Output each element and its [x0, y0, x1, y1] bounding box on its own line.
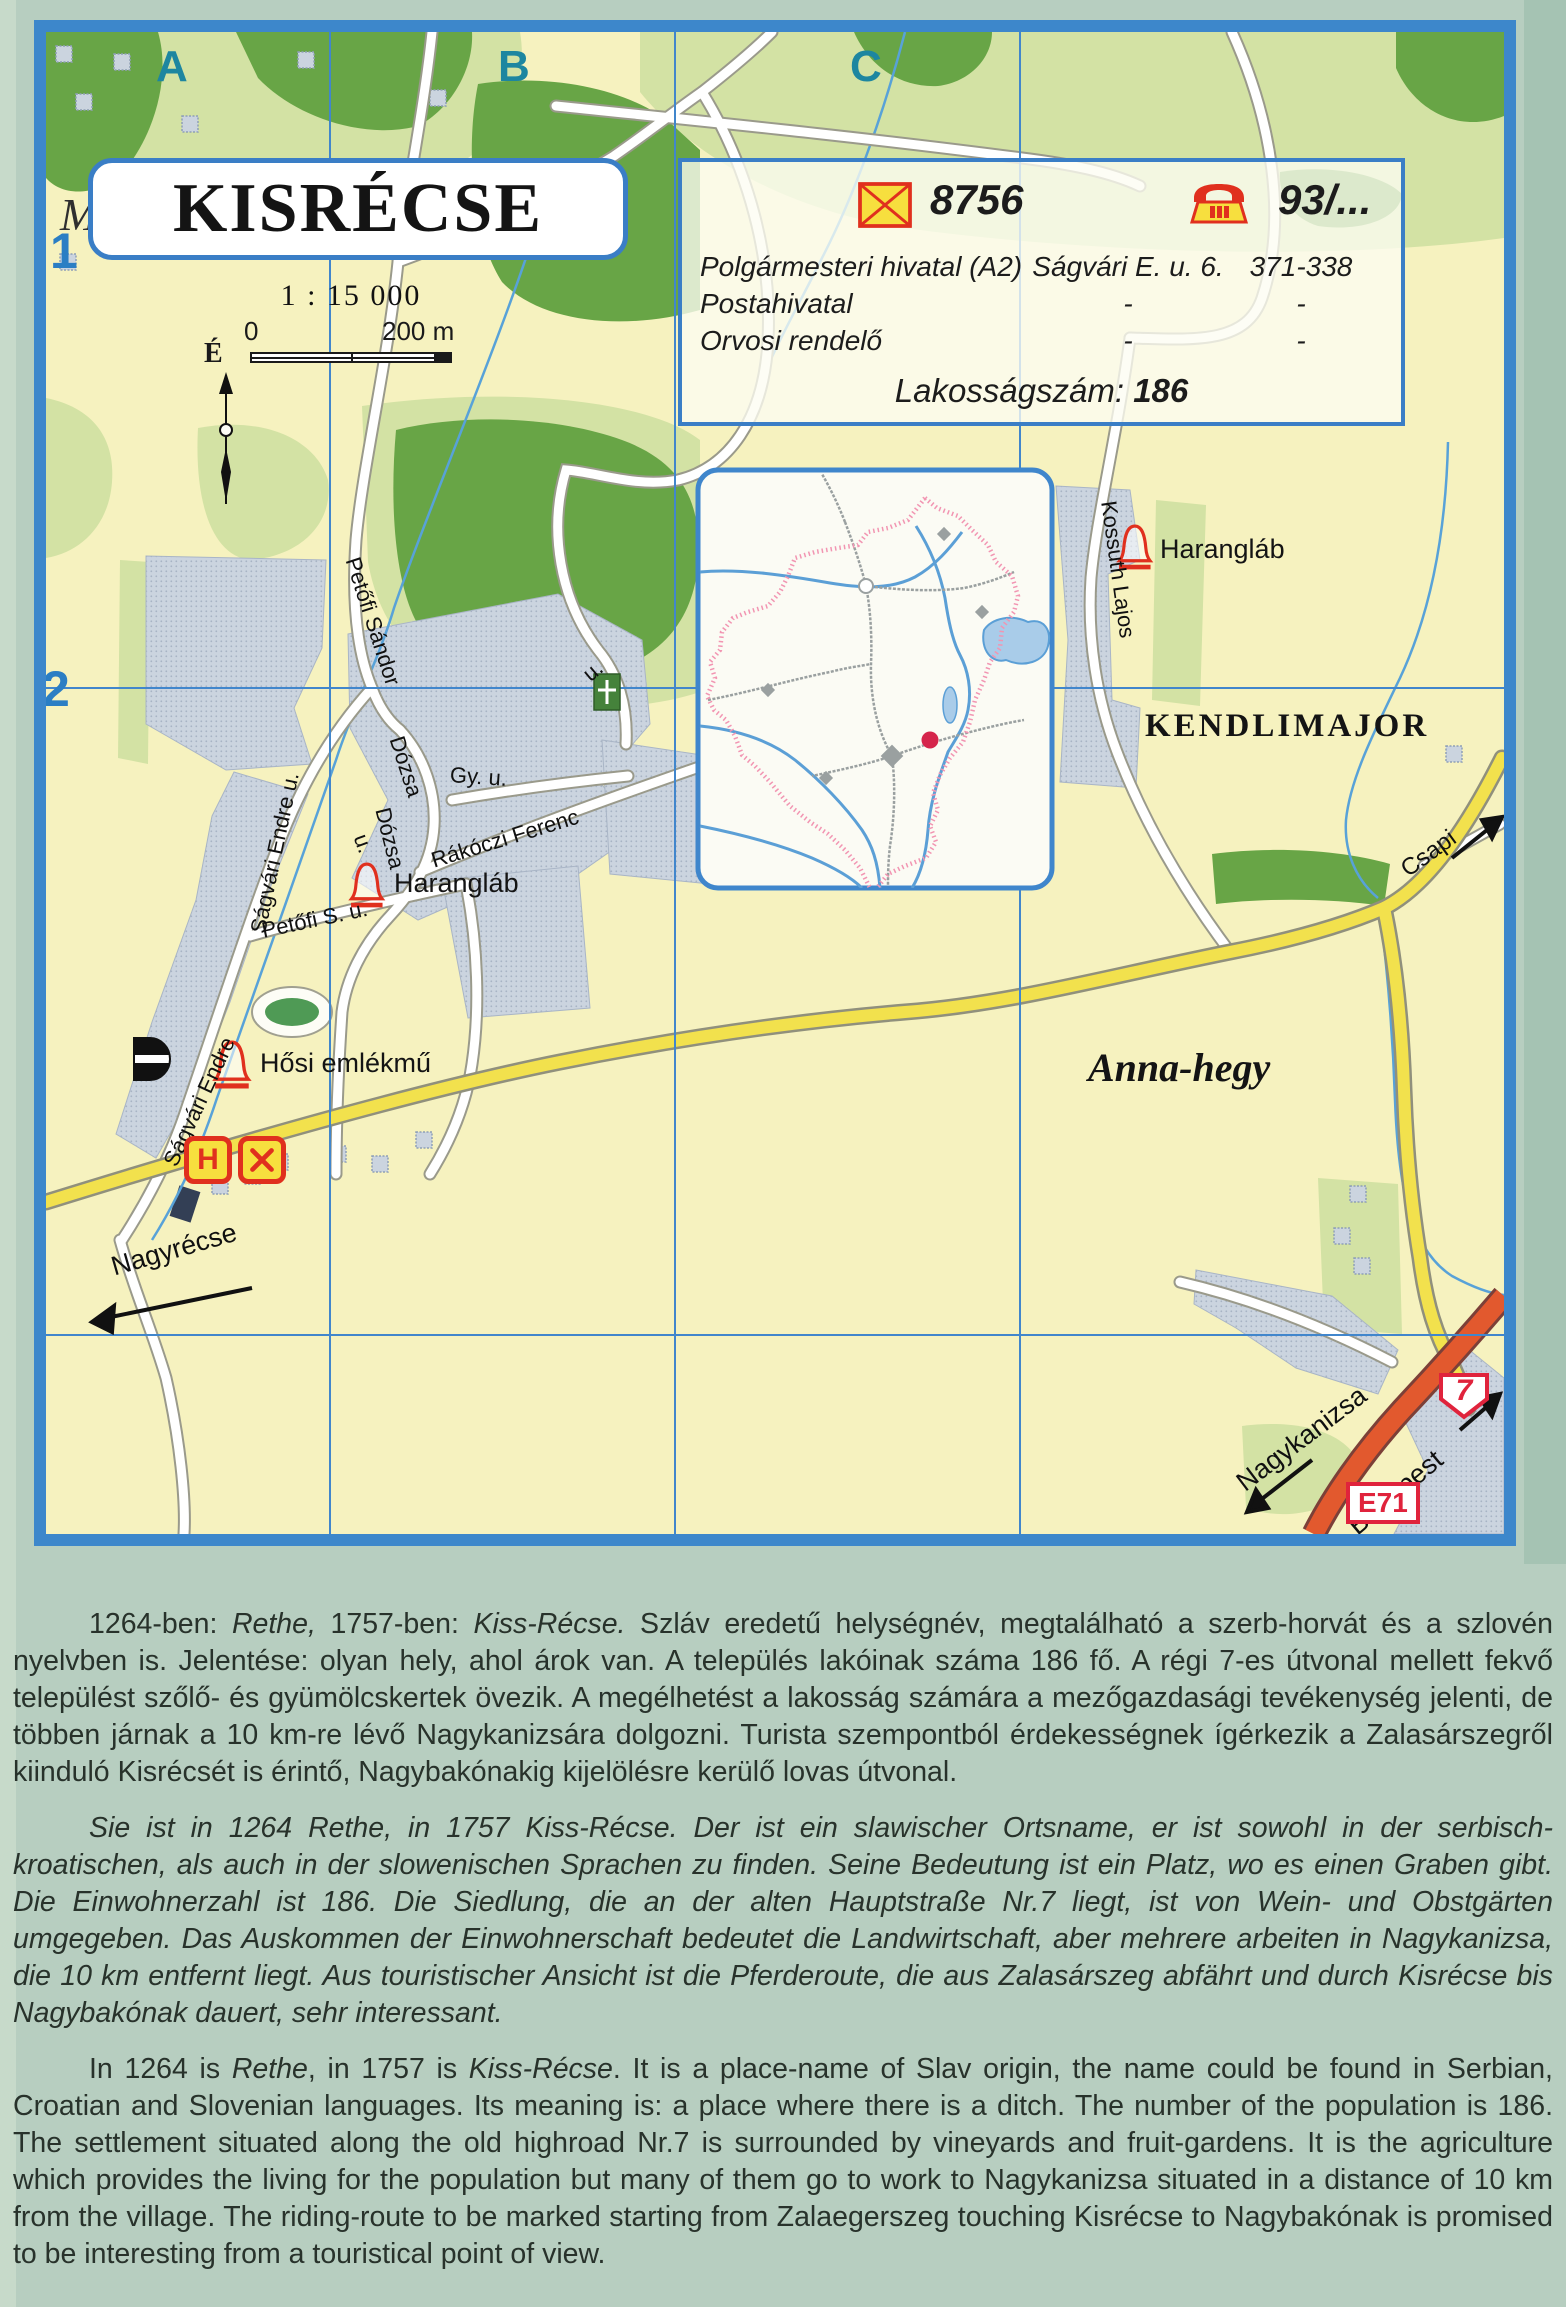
- map-scale-ratio: 1 : 15 000: [236, 279, 466, 313]
- phone-area-code: 93/...: [1278, 176, 1371, 224]
- north-label: É: [204, 338, 223, 370]
- page-right-edge: [1524, 0, 1566, 1564]
- table-row: Polgármesteri hivatal (A2) Ságvári E. u.…: [700, 248, 1384, 285]
- institution-name: Postahivatal: [700, 288, 1030, 320]
- restaurant-icon: [238, 1136, 286, 1184]
- scale-zero: 0: [244, 316, 258, 347]
- inset-locator-map: [698, 470, 1052, 888]
- envelope-icon: [858, 182, 912, 228]
- route-7-shield: 7: [1438, 1372, 1490, 1420]
- scale-distance: 200 m: [382, 316, 454, 347]
- institution-address: -: [1030, 325, 1226, 357]
- place-label-haranglab-village: Harangláb: [394, 868, 519, 899]
- info-table: Polgármesteri hivatal (A2) Ságvári E. u.…: [700, 248, 1384, 359]
- table-row: Postahivatal - -: [700, 285, 1384, 322]
- scale-bar-rule: [250, 352, 452, 363]
- hotel-icon: H: [184, 1136, 232, 1184]
- institution-phone: -: [1226, 325, 1376, 357]
- north-arrow-icon: [214, 372, 238, 512]
- sports-field: [252, 987, 332, 1037]
- grid-row-2: 2: [42, 660, 70, 718]
- institution-address: -: [1030, 288, 1226, 320]
- place-label-haranglab-north: Harangláb: [1160, 534, 1285, 565]
- grid-column-c: C: [850, 42, 882, 92]
- map-title-box: KISRÉCSE: [88, 158, 628, 260]
- paragraph-english: In 1264 is Rethe, in 1757 is Kiss-Récse.…: [13, 2051, 1553, 2273]
- population-label: Lakosságszám:: [895, 372, 1124, 409]
- place-label-hosi-emlekmu: Hősi emlékmű: [260, 1048, 431, 1079]
- street-label: Gy. u.: [449, 762, 508, 792]
- paragraph-german: Sie ist in 1264 Rethe, in 1757 Kiss-Récs…: [13, 1810, 1553, 2032]
- postal-code: 8756: [930, 176, 1023, 224]
- page-title: KISRÉCSE: [173, 169, 543, 249]
- grid-column-a: A: [156, 42, 188, 92]
- population-value: 186: [1133, 372, 1188, 409]
- scale-bar: 0 200 m: [250, 316, 470, 368]
- description-text-section: 1264-ben: Rethe, 1757-ben: Kiss-Récse. S…: [13, 1606, 1553, 2292]
- institution-name: Polgármesteri hivatal (A2): [700, 251, 1030, 283]
- institution-phone: -: [1226, 288, 1376, 320]
- place-label-anna-hegy: Anna-hegy: [1088, 1044, 1270, 1091]
- population-line: Lakosságszám: 186: [682, 372, 1401, 410]
- municipal-info-box: 8756 93/... Polgármesteri hivatal (A2) S…: [678, 158, 1405, 426]
- grid-row-1: 1: [50, 222, 78, 280]
- table-row: Orvosi rendelő - -: [700, 322, 1384, 359]
- institution-address: Ságvári E. u. 6.: [1030, 251, 1226, 283]
- grid-column-b: B: [498, 42, 530, 92]
- institution-phone: 371-338: [1226, 251, 1376, 283]
- location-dot-icon: [922, 732, 939, 749]
- monument-flag-icon: [134, 1038, 170, 1080]
- route-e71-shield: E71: [1346, 1482, 1420, 1524]
- scanned-map-page: M KISRÉCSE 1 : 15 000 0 200 m É A B C 1 …: [0, 0, 1566, 2307]
- phone-icon: [1186, 180, 1252, 226]
- paragraph-hungarian: 1264-ben: Rethe, 1757-ben: Kiss-Récse. S…: [13, 1606, 1553, 1791]
- place-label-kendlimajor: KENDLIMAJOR: [1145, 708, 1429, 745]
- institution-name: Orvosi rendelő: [700, 325, 1030, 357]
